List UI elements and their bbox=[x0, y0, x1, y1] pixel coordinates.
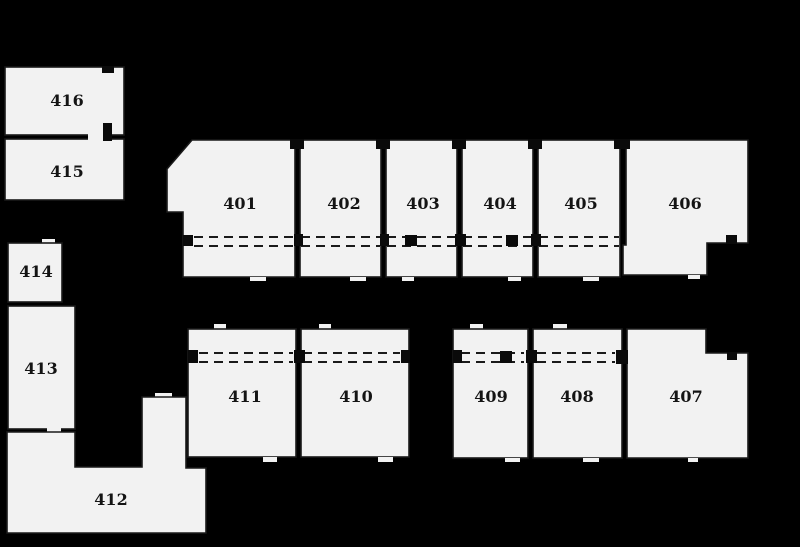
wall-notch bbox=[102, 66, 114, 73]
room-409-label: 409 bbox=[474, 387, 507, 406]
room-404[interactable]: 404 bbox=[462, 140, 533, 277]
room-410[interactable]: 410 bbox=[301, 324, 409, 457]
room-416-label: 416 bbox=[50, 91, 83, 110]
room-404-label: 404 bbox=[483, 194, 516, 213]
floor-plan: 416 415 414 413 412 401 402 403 404 bbox=[0, 0, 800, 547]
floor-plan-canvas: 416 415 414 413 412 401 402 403 404 bbox=[0, 0, 800, 547]
room-411-label: 411 bbox=[228, 387, 261, 406]
room-412-label: 412 bbox=[94, 490, 127, 509]
room-414[interactable]: 414 bbox=[8, 239, 62, 302]
room-415[interactable]: 415 bbox=[5, 139, 124, 200]
room-407-label: 407 bbox=[669, 387, 702, 406]
wall-notch bbox=[727, 352, 737, 360]
room-414-label: 414 bbox=[19, 262, 52, 281]
room-401[interactable]: 401 bbox=[167, 140, 295, 277]
room-403-label: 403 bbox=[406, 194, 439, 213]
room-415-label: 415 bbox=[50, 162, 83, 181]
room-401-label: 401 bbox=[223, 194, 256, 213]
room-405[interactable]: 405 bbox=[538, 140, 620, 277]
room-408[interactable]: 408 bbox=[533, 324, 622, 458]
room-402-label: 402 bbox=[327, 194, 360, 213]
room-409[interactable]: 409 bbox=[453, 324, 528, 458]
room-405-label: 405 bbox=[564, 194, 597, 213]
wall-stub bbox=[103, 123, 112, 141]
room-413-label: 413 bbox=[24, 359, 57, 378]
room-403[interactable]: 403 bbox=[386, 140, 457, 277]
doorway-gap bbox=[88, 132, 103, 141]
room-406-label: 406 bbox=[668, 194, 701, 213]
room-402[interactable]: 402 bbox=[300, 140, 381, 277]
room-408-label: 408 bbox=[560, 387, 593, 406]
room-410-label: 410 bbox=[339, 387, 372, 406]
room-411[interactable]: 411 bbox=[188, 324, 296, 457]
wall-notch bbox=[726, 235, 737, 244]
room-413[interactable]: 413 bbox=[8, 306, 75, 429]
